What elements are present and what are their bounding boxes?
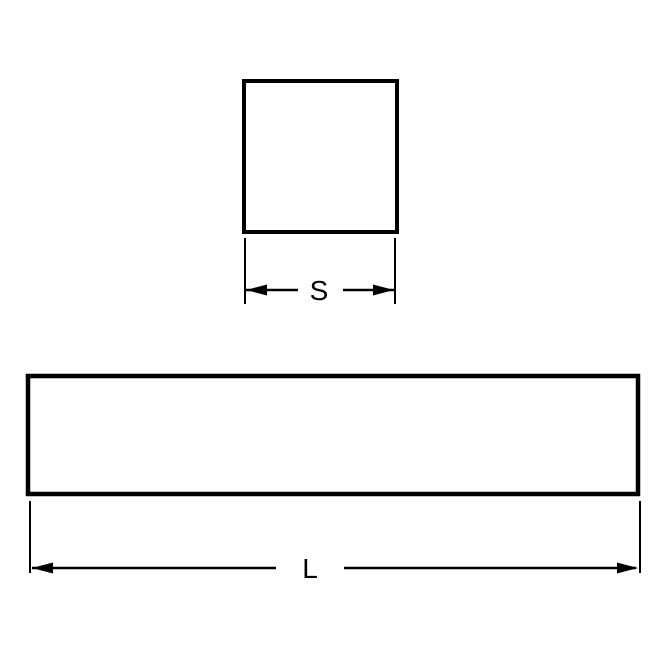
s-dim-arrowhead-left-icon [246,285,267,296]
l-dimension-label: L [302,553,318,584]
l-dim-arrowhead-right-icon [617,563,638,574]
s-dim-arrowhead-right-icon [373,285,394,296]
l-dim-arrowhead-left-icon [32,563,53,574]
diagram-canvas: S L [0,0,670,670]
s-dimension-label: S [310,275,329,306]
bar-side-view-outline [28,376,638,494]
diagram-fills: S L [32,275,638,584]
diagram-strokes: S L [28,81,640,584]
keysteel-dimension-diagram: S L [0,0,670,670]
square-cross-section-outline [244,81,397,232]
